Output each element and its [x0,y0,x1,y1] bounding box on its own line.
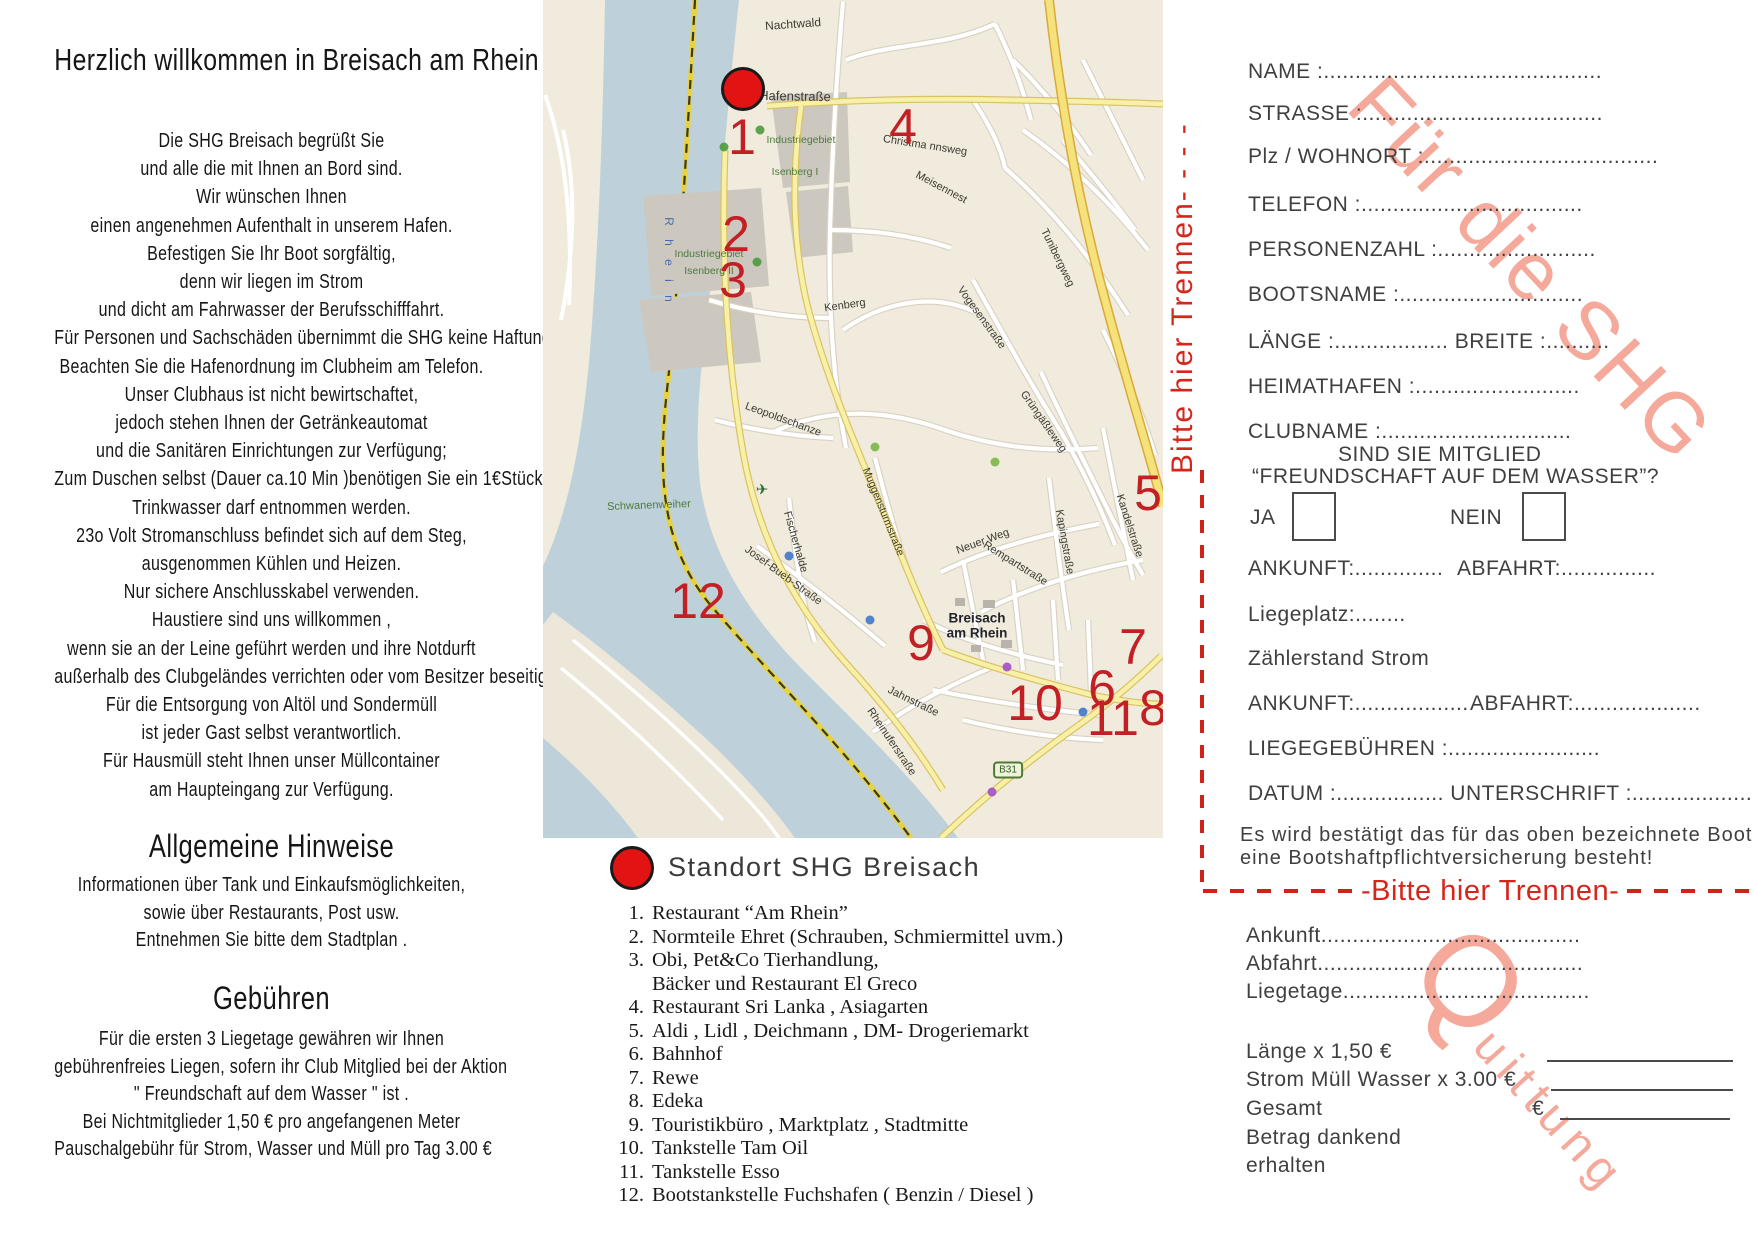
receipt-laenge-row: Länge x 1,50 € [1246,1040,1392,1064]
section-text-line: sowie über Restaurants, Post usw. [54,900,488,928]
receipt-abfahrt-field[interactable]: Abfahrt.................................… [1246,952,1583,976]
cut-here-label: -Bitte hier Trennen- [1361,875,1619,908]
receipt-betrag-line2: erhalten [1246,1154,1326,1178]
street-label: Breisach [948,611,1005,625]
welcome-text-line: jedoch stehen Ihnen der Getränkeautomat [54,409,488,437]
section-allgemeine-text: Informationen über Tank und Einkaufsmögl… [0,872,543,955]
section-text-line: " Freundschaft auf dem Wasser " ist . [54,1081,488,1109]
list-item-number: 8. [598,1090,644,1114]
receipt-gesamt-row: Gesamt [1246,1097,1323,1121]
confirm-note-line1: Es wird bestätigt das für das oben bezei… [1240,824,1752,847]
map-marker-number: 7 [1119,622,1147,672]
list-item-number: 6. [598,1043,644,1067]
list-item-number: 7. [598,1067,644,1091]
list-item-number: 4. [598,996,644,1020]
map-marker-number: 5 [1134,468,1162,518]
route-badge: B31 [993,762,1023,779]
poi-icon [871,443,880,452]
welcome-text-line: am Haupteingang zur Verfügung. [54,776,488,804]
clubname-field[interactable]: CLUBNAME :.............................. [1248,420,1571,444]
list-item: 5. Aldi , Lidl , Deichmann , DM- Drogeri… [598,1020,1063,1044]
station-marker-icon [721,67,765,111]
list-item-number: 1. [598,902,644,926]
list-item: 12. Bootstankstelle Fuchshafen ( Benzin … [598,1184,1063,1208]
welcome-text: Die SHG Breisach begrüßt Sieund alle die… [0,127,543,804]
map-marker-number: 4 [889,102,917,152]
list-item: 4. Restaurant Sri Lanka , Asiagarten [598,996,1063,1020]
strasse-field[interactable]: STRASSE :...............................… [1248,102,1603,126]
list-item-text: Bahnhof [652,1043,723,1067]
welcome-text-line: Beachten Sie die Hafenordnung im Clubhei… [54,353,488,381]
list-item: 10. Tankstelle Tam Oil [598,1137,1063,1161]
abfahrt2-field[interactable]: ABFAHRT:.................... [1470,692,1701,716]
list-item-text: Normteile Ehret (Schrauben, Schmiermitte… [652,926,1063,950]
section-text-line: Informationen über Tank und Einkaufsmögl… [54,872,488,900]
welcome-text-line: und alle die mit Ihnen an Bord sind. [54,155,488,183]
list-item-number: 3. [598,949,644,973]
list-item-text: Edeka [652,1090,703,1114]
welcome-text-line: Für Hausmüll steht Ihnen unser Müllconta… [54,747,488,775]
receipt-strom-row: Strom Müll Wasser x 3.00 € [1246,1068,1516,1092]
telefon-field[interactable]: TELEFON :...............................… [1248,193,1583,217]
list-item-text: Touristikbüro , Marktplatz , Stadtmitte [652,1114,968,1138]
list-item: 1. Restaurant “Am Rhein” [598,902,1063,926]
list-item-text: Tankstelle Esso [652,1161,780,1185]
laenge-breite-field[interactable]: LÄNGE :.................. BREITE :......… [1248,330,1610,354]
list-item-text: Rewe [652,1067,699,1091]
list-item-text: Restaurant “Am Rhein” [652,902,848,926]
abfahrt1-field[interactable]: ABFAHRT:............... [1457,557,1656,581]
ja-label: JA [1250,506,1276,530]
list-item: 3. Obi, Pet&Co Tierhandlung, [598,949,1063,973]
welcome-text-line: wenn sie an der Leine geführt werden und… [54,635,488,663]
list-item: 8. Edeka [598,1090,1063,1114]
welcome-text-line: 23o Volt Stromanschluss befindet sich au… [54,522,488,550]
street-label: Isenberg I [772,167,819,178]
list-item: 9. Touristikbüro , Marktplatz , Stadtmit… [598,1114,1063,1138]
receipt-ankunft-field[interactable]: Ankunft.................................… [1246,924,1580,948]
poi-icon [785,552,794,561]
poi-icon [988,788,997,797]
welcome-text-line: Trinkwasser darf entnommen werden. [54,494,488,522]
welcome-text-line: Unser Clubhaus ist nicht bewirtschaftet, [54,381,488,409]
list-item-number [598,973,644,997]
ankunft2-field[interactable]: ANKUNFT:.................. [1248,692,1469,716]
cut-here-horizontal: -Bitte hier Trennen- [1203,874,1753,908]
welcome-text-line: einen angenehmen Aufenthalt in unserem H… [54,212,488,240]
receipt-strom-amount-line[interactable] [1551,1089,1733,1091]
heimathafen-field[interactable]: HEIMATHAFEN :.......................... [1248,375,1580,399]
welcome-text-line: Haustiere sind uns willkommen , [54,606,488,634]
street-map-graphic [543,0,1163,838]
cut-line-right [1627,889,1753,893]
poi-icon [866,616,875,625]
list-item: 7. Rewe [598,1067,1063,1091]
street-label: Industriegebiet [767,135,836,146]
receipt-gesamt-amount-line[interactable] [1560,1118,1730,1120]
legend-station-label: Standort SHG Breisach [668,852,980,883]
map-marker-number: 3 [719,255,747,305]
list-item-text: Bootstankstelle Fuchshafen ( Benzin / Di… [652,1184,1033,1208]
section-heading-gebuehren: Gebühren [54,980,488,1017]
poi-list: 1. Restaurant “Am Rhein” 2. Normteile Eh… [598,902,1063,1208]
list-item-text: Bäcker und Restaurant El Greco [652,973,917,997]
receipt-gesamt-euro: € [1532,1097,1544,1121]
cut-here-vertical-label: Bitte hier Trennen- - - - [1166,0,1206,474]
zaehlerstand-label: Zählerstand Strom [1248,647,1429,671]
list-item-number: 5. [598,1020,644,1044]
list-item-number: 2. [598,926,644,950]
map-marker-number: 11 [1087,693,1139,743]
receipt-betrag-line1: Betrag dankend [1246,1126,1401,1150]
liegeplatz-field[interactable]: Liegeplatz:........ [1248,603,1406,627]
street-label: R h e i n [663,217,675,307]
list-item-text: Obi, Pet&Co Tierhandlung, [652,949,879,973]
list-item-number: 11. [598,1161,644,1185]
poi-icon [753,258,762,267]
list-item: 11. Tankstelle Esso [598,1161,1063,1185]
welcome-text-line: Befestigen Sie Ihr Boot sorgfältig, [54,240,488,268]
street-label: Hafenstraße [759,89,831,103]
map-marker-number: 12 [670,576,726,626]
map-marker-number: 8 [1139,683,1163,733]
list-item-text: Aldi , Lidl , Deichmann , DM- Drogeriema… [652,1020,1029,1044]
poi-icon [1003,663,1012,672]
welcome-text-line: ist jeder Gast selbst verantwortlich. [54,719,488,747]
mitglied-question-line2: “FREUNDSCHAFT AUF DEM WASSER”? [1252,465,1659,489]
poi-icon [991,458,1000,467]
welcome-text-line: Nur sichere Anschlusskabel verwenden. [54,578,488,606]
confirm-note-line2: eine Bootshaftpflichtversicherung besteh… [1240,847,1653,870]
welcome-text-line: Zum Duschen selbst (Dauer ca.10 Min )ben… [54,465,488,493]
street-label: am Rhein [947,626,1008,640]
list-item-number: 10. [598,1137,644,1161]
list-item: 6. Bahnhof [598,1043,1063,1067]
map-marker-number: 10 [1007,678,1063,728]
name-field[interactable]: NAME :..................................… [1248,60,1602,84]
welcome-text-line: außerhalb des Clubgeländes verrichten od… [54,663,488,691]
list-item-text: Restaurant Sri Lanka , Asiagarten [652,996,928,1020]
street-label: ✈ [756,483,769,498]
welcome-text-line: denn wir liegen im Strom [54,268,488,296]
watermark-quittung: Q uittung [1389,902,1685,1210]
list-item: Bäcker und Restaurant El Greco [598,973,1063,997]
list-item-text: Tankstelle Tam Oil [652,1137,808,1161]
mitglied-question-line1: SIND SIE MITGLIED [1338,443,1541,467]
welcome-panel: Herzlich willkommen in Breisach am Rhein… [0,0,543,1240]
map-marker-number: 9 [907,618,935,668]
receipt-laenge-amount-line[interactable] [1547,1060,1733,1062]
ja-checkbox[interactable] [1292,492,1336,541]
receipt-liegetage-field[interactable]: Liegetage...............................… [1246,980,1590,1004]
street-label: Nachtwald [765,16,822,32]
list-item-number: 9. [598,1114,644,1138]
personenzahl-field[interactable]: PERSONENZAHL :......................... [1248,238,1596,262]
welcome-text-line: ausgenommen Kühlen und Heizen. [54,550,488,578]
welcome-text-line: Für Personen und Sachschäden übernimmt d… [54,324,488,352]
plz-wohnort-field[interactable]: Plz / WOHNORT :.........................… [1248,145,1658,169]
liegegebuehren-field[interactable]: LIEGEGEBÜHREN :........................ [1248,737,1600,761]
section-text-line: Entnehmen Sie bitte dem Stadtplan . [54,927,488,955]
nein-label: NEIN [1450,506,1502,530]
ankunft1-field[interactable]: ANKUNFT:.............. [1248,557,1443,581]
map-marker-number: 1 [728,112,756,162]
datum-unterschrift-field[interactable]: DATUM :................. UNTERSCHRIFT :.… [1248,782,1753,806]
section-text-line: Pauschalgebühr für Strom, Wasser und Mül… [54,1136,488,1164]
legend-station-icon [610,846,654,890]
cut-line-vertical [1200,470,1204,882]
section-text-line: gebührenfreies Liegen, sofern ihr Club M… [54,1054,488,1082]
welcome-text-line: und die Sanitären Einrichtungen zur Verf… [54,437,488,465]
section-heading-allgemeine: Allgemeine Hinweise [54,828,488,865]
list-item: 2. Normteile Ehret (Schrauben, Schmiermi… [598,926,1063,950]
page-title: Herzlich willkommen in Breisach am Rhein [54,42,488,78]
welcome-text-line: Wir wünschen Ihnen [54,183,488,211]
welcome-text-line: Für die Entsorgung von Altöl und Sonderm… [54,691,488,719]
bootsname-field[interactable]: BOOTSNAME :............................. [1248,283,1583,307]
watermark-quittung-rest: uittung [1462,1019,1637,1205]
nein-checkbox[interactable] [1522,492,1566,541]
list-item-number: 12. [598,1184,644,1208]
welcome-text-line: Die SHG Breisach begrüßt Sie [54,127,488,155]
poi-icon [756,126,765,135]
section-text-line: Bei Nichtmitglieder 1,50 € pro angefange… [54,1109,488,1137]
section-gebuehren-text: Für die ersten 3 Liegetage gewähren wir … [0,1026,543,1164]
section-text-line: Für die ersten 3 Liegetage gewähren wir … [54,1026,488,1054]
welcome-text-line: und dicht am Fahrwasser der Berufsschiff… [54,296,488,324]
cut-line-left [1203,889,1353,893]
city-map: NachtwaldHafenstraßeIndustriegebietIsenb… [543,0,1163,838]
